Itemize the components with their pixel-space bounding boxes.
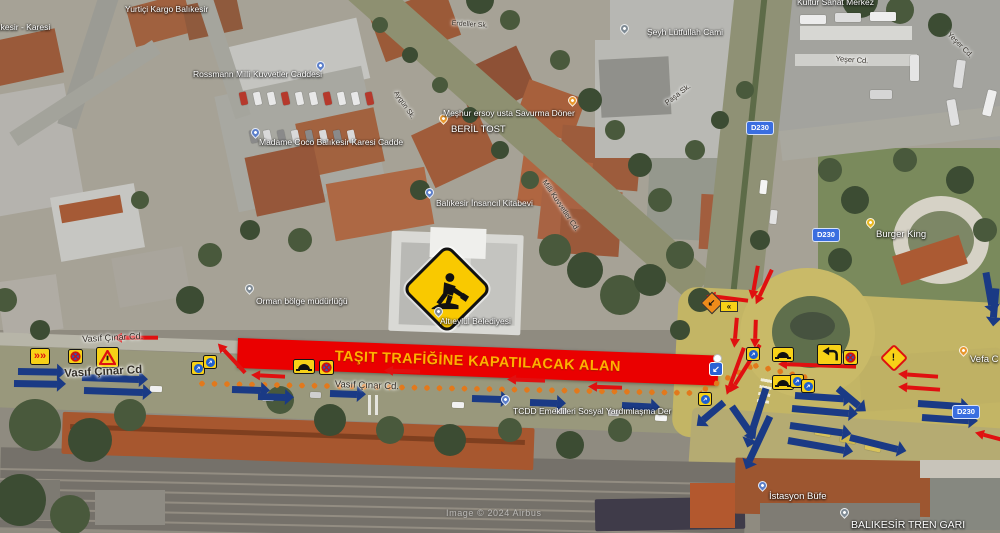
route-shield-d230: D230 (746, 121, 774, 135)
no-stopping-sign-icon (68, 349, 83, 364)
vehicle (452, 402, 464, 408)
speed-bump-sign-icon (772, 347, 794, 362)
traffic-flow-arrow (84, 382, 153, 401)
undefined (251, 370, 261, 380)
poi-label: Burger King (876, 229, 926, 240)
poi-label: Orman bölge müdürlüğü (256, 296, 348, 306)
undefined (143, 384, 153, 400)
undefined (733, 318, 739, 339)
poi-label: Şeyh Lütfullah Cami (647, 27, 723, 37)
undefined (753, 320, 758, 339)
poi-label: BERİL TOST (451, 124, 506, 135)
tree (670, 320, 690, 340)
undefined (472, 395, 501, 403)
vehicle (835, 13, 861, 22)
street-label: Vasıf Çınar Cd. (335, 379, 400, 392)
poi-label: Yurtiçi Kargo Balıkesir (125, 4, 208, 14)
vehicle (870, 12, 896, 21)
building (599, 56, 672, 118)
undefined (330, 390, 357, 397)
undefined: ➜ (699, 393, 712, 406)
tree (841, 186, 869, 214)
mandatory-direction-sign-icon: ➜ (203, 355, 217, 369)
worker-digging-glyph (424, 266, 470, 312)
tree (521, 171, 539, 189)
undefined (907, 373, 938, 380)
undefined (747, 290, 758, 301)
closure-banner-text: TAŞIT TRAFİĞİNE KAPATILACAK ALAN (335, 349, 622, 375)
tree (9, 399, 61, 451)
tree (648, 188, 672, 212)
undefined (597, 385, 622, 390)
closure-endpoint-dot (713, 354, 722, 363)
route-shield-d230: D230 (812, 228, 840, 242)
vehicle (870, 90, 892, 99)
left-turn-sign-icon (817, 344, 842, 365)
undefined (751, 266, 760, 291)
undefined (990, 288, 999, 317)
poi-label: İstasyon Büfe (769, 491, 827, 502)
mandatory-direction-sign-icon: ➜ (698, 392, 712, 406)
tree (314, 404, 346, 436)
vehicle (310, 392, 321, 398)
poi-label: Rossmann Milli Kuvvetler Caddesi (193, 69, 322, 79)
vehicle (800, 15, 826, 24)
traffic-flow-arrow (984, 287, 1000, 326)
tree (372, 17, 388, 33)
chevron-board-icon: « (720, 301, 738, 312)
tree (556, 431, 584, 459)
undefined (516, 378, 545, 384)
poi-label: TCDD Emeklileri Sosyal Yardımlaşma Der (513, 406, 671, 416)
vehicle (769, 210, 777, 225)
tree (114, 399, 146, 431)
closed-direction-arrow (384, 365, 420, 378)
poi-label: Altıeylül Belediyesi (440, 316, 511, 326)
undefined (898, 369, 908, 380)
closed-direction-arrow (251, 369, 286, 382)
undefined (983, 433, 1000, 442)
tree (491, 141, 509, 159)
crosswalk (368, 395, 378, 415)
undefined: ➜ (802, 380, 815, 393)
tree (30, 320, 50, 340)
tree (736, 81, 754, 99)
poi-label: Kültür Sanat Merkez (797, 0, 874, 7)
vehicle (759, 180, 767, 195)
tree (550, 50, 570, 70)
vehicle (910, 55, 919, 81)
undefined: ➜ (204, 356, 217, 369)
tree (402, 47, 418, 63)
traffic-flow-arrow (14, 375, 66, 393)
no-stopping-sign-icon (319, 360, 334, 375)
building (690, 483, 735, 528)
undefined (260, 373, 285, 379)
undefined (393, 369, 420, 374)
roundabout-pond (790, 312, 835, 340)
poi-label: Madame Coco Balıkesir Karesi Cadde (259, 137, 403, 147)
tree (685, 140, 705, 160)
tree (893, 148, 917, 172)
route-shield-d230: D230 (952, 405, 980, 419)
poi-label: BALIKESİR TREN GARI (851, 519, 965, 531)
tree (818, 158, 842, 182)
tree (946, 166, 974, 194)
tree (500, 10, 520, 30)
poi-label: Meşhur ersoy usta Savurma Döner (443, 108, 575, 118)
undefined (84, 387, 143, 396)
undefined (898, 382, 908, 393)
tree (711, 111, 729, 129)
tree (666, 241, 694, 269)
imagery-attribution: Image © 2024 Airbus (446, 508, 542, 518)
undefined (792, 405, 849, 416)
tree (750, 230, 770, 250)
undefined: ! (892, 353, 895, 364)
tree (828, 248, 852, 272)
tree (973, 218, 997, 242)
undefined (588, 382, 597, 392)
undefined: ➜ (747, 348, 760, 361)
tree (634, 264, 666, 296)
tree (432, 77, 448, 93)
tree (131, 191, 149, 209)
undefined (14, 380, 57, 387)
undefined (384, 366, 393, 376)
undefined: ↙ (708, 297, 716, 308)
poi-label: Balıkesir İnsancıl Kitabevi (436, 198, 533, 208)
tree (628, 153, 652, 177)
undefined (907, 385, 940, 392)
satellite-map-canvas[interactable]: TAŞIT TRAFİĞİNE KAPATILACAK ALAN »»➜➜➜➜➜… (0, 0, 1000, 533)
tree (288, 228, 312, 252)
undefined (18, 368, 57, 375)
tree (240, 220, 260, 240)
tree (434, 424, 466, 456)
tree (539, 234, 571, 266)
tree (198, 243, 222, 267)
building (95, 490, 165, 525)
closed-direction-arrow (588, 381, 622, 394)
tree (68, 418, 112, 462)
tree (578, 88, 602, 112)
mandatory-direction-sign-icon: ➜ (801, 379, 815, 393)
building (800, 26, 912, 40)
tree (567, 252, 603, 288)
undefined (258, 393, 285, 400)
poi-label: Vefa C (970, 354, 999, 365)
merge-sign-icon: »» (30, 348, 50, 365)
traffic-flow-arrow (258, 388, 295, 406)
tree (608, 418, 632, 442)
detour-arrow-sign-icon: ↙ (709, 362, 723, 376)
undefined (985, 316, 1000, 326)
tree (376, 416, 404, 444)
tree (50, 495, 90, 533)
building (920, 460, 1000, 478)
speed-bump-sign-icon (293, 359, 315, 374)
undefined (507, 375, 516, 385)
tree (176, 286, 204, 314)
tree (498, 418, 522, 442)
closed-direction-arrow (507, 374, 545, 387)
undefined (232, 386, 261, 394)
undefined (285, 389, 295, 405)
mandatory-direction-sign-icon: ➜ (746, 347, 760, 361)
tree (605, 120, 625, 140)
no-stopping-sign-icon (843, 350, 858, 365)
poi-label: Balıkesir - Karesi (0, 22, 50, 32)
